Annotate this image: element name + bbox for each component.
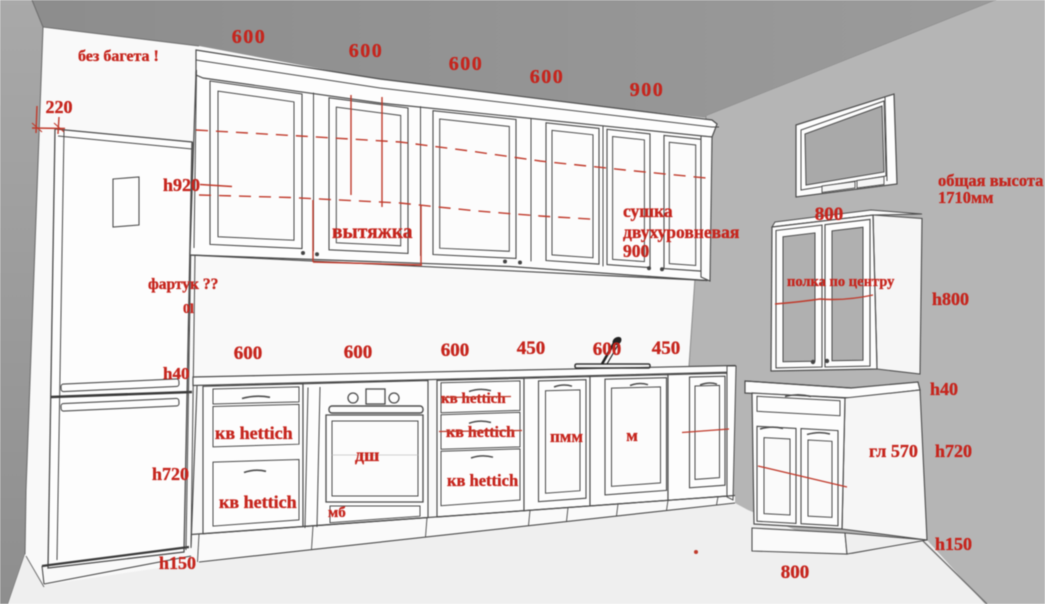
svg-text:h920: h920: [163, 175, 200, 195]
svg-text:кв hettich: кв hettich: [446, 424, 515, 441]
svg-text:гл 570: гл 570: [869, 441, 918, 461]
svg-text:h800: h800: [932, 289, 969, 309]
svg-text:0l: 0l: [183, 302, 194, 317]
svg-text:600: 600: [593, 339, 622, 360]
svg-text:900: 900: [623, 241, 650, 261]
svg-text:600: 600: [232, 26, 267, 48]
svg-text:мб: мб: [328, 505, 346, 521]
svg-text:800: 800: [815, 204, 844, 225]
svg-text:600: 600: [234, 343, 263, 364]
svg-text:450: 450: [652, 338, 681, 359]
svg-text:вытяжка: вытяжка: [332, 222, 413, 243]
svg-text:1710мм: 1710мм: [938, 188, 993, 207]
svg-text:сушка: сушка: [623, 201, 673, 221]
svg-text:h720: h720: [935, 441, 972, 461]
svg-text:кв hettich: кв hettich: [219, 492, 297, 512]
svg-text:h720: h720: [152, 464, 189, 484]
svg-text:без багета !: без багета !: [78, 48, 159, 65]
svg-text:полка по центру: полка по центру: [787, 274, 895, 290]
svg-text:м: м: [626, 426, 638, 445]
svg-text:900: 900: [630, 79, 665, 101]
svg-text:h40: h40: [930, 379, 958, 399]
svg-text:кв hettich: кв hettich: [215, 423, 293, 443]
svg-text:600: 600: [441, 340, 470, 361]
svg-text:кв hettich: кв hettich: [447, 471, 518, 490]
svg-text:600: 600: [349, 40, 384, 62]
svg-text:h150: h150: [935, 534, 972, 554]
svg-text:600: 600: [449, 53, 484, 75]
svg-text:кв hettich: кв hettich: [441, 391, 506, 407]
svg-text:пмм: пмм: [550, 427, 583, 446]
svg-text:фартук ??: фартук ??: [148, 276, 218, 293]
svg-text:600: 600: [344, 342, 373, 363]
svg-text:h150: h150: [159, 553, 196, 573]
svg-text:600: 600: [530, 66, 565, 88]
svg-text:800: 800: [781, 562, 810, 583]
svg-text:двухуровневая: двухуровневая: [623, 222, 739, 242]
svg-text:h40: h40: [163, 364, 189, 383]
svg-text:450: 450: [517, 338, 546, 359]
svg-text:220: 220: [46, 97, 73, 117]
svg-text:дш: дш: [355, 445, 379, 465]
